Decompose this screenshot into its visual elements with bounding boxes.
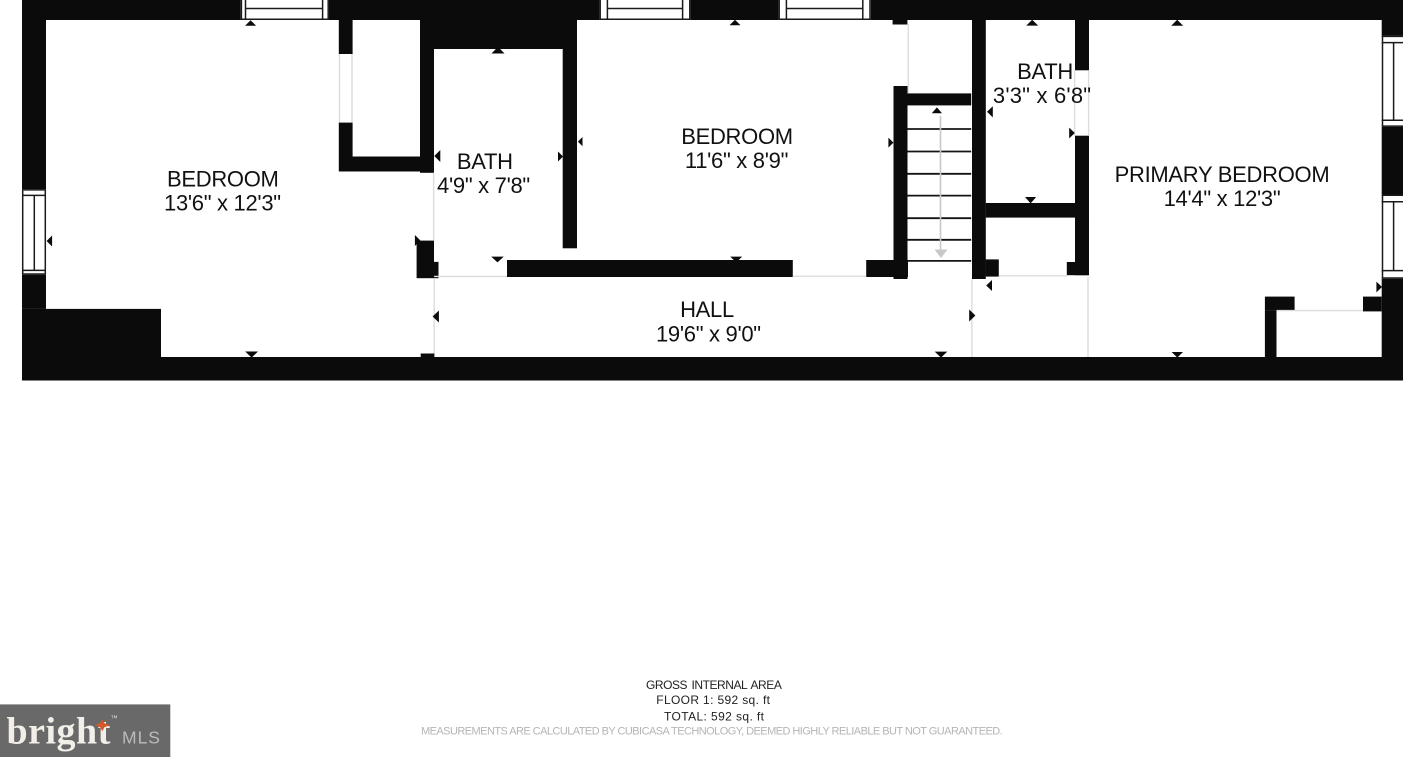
svg-text:19'6" x 9'0": 19'6" x 9'0" [656,321,761,346]
svg-text:GROSS INTERNAL AREA: GROSS INTERNAL AREA [646,678,782,692]
svg-text:FLOOR 1: 592 sq. ft: FLOOR 1: 592 sq. ft [656,693,770,707]
svg-text:BATH: BATH [1017,59,1073,84]
svg-text:bright: bright [7,711,111,753]
svg-text:14'4" x 12'3": 14'4" x 12'3" [1164,186,1281,211]
svg-text:11'6" x 8'9": 11'6" x 8'9" [685,148,788,173]
svg-text:4'9" x 7'8": 4'9" x 7'8" [437,173,530,198]
svg-text:MLS: MLS [122,728,161,748]
svg-text:13'6" x 12'3": 13'6" x 12'3" [164,191,281,216]
svg-text:HALL: HALL [680,297,734,322]
svg-text:™: ™ [111,714,119,723]
svg-text:3'3" x 6'8": 3'3" x 6'8" [993,83,1091,108]
svg-text:BATH: BATH [457,149,513,174]
svg-text:PRIMARY BEDROOM: PRIMARY BEDROOM [1115,162,1330,187]
svg-text:TOTAL: 592 sq. ft: TOTAL: 592 sq. ft [664,710,765,724]
svg-text:BEDROOM: BEDROOM [167,167,279,192]
svg-text:MEASUREMENTS ARE CALCULATED BY: MEASUREMENTS ARE CALCULATED BY CUBICASA … [421,726,1003,738]
svg-text:BEDROOM: BEDROOM [681,124,793,149]
